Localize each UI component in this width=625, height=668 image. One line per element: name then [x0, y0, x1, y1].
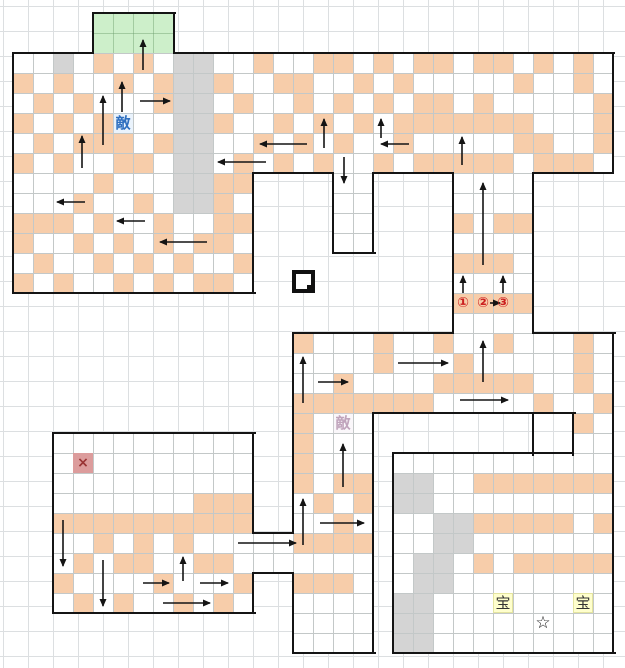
enemy-label-2: 敵 [333, 413, 353, 433]
treasure-label-1: 宝 [493, 593, 513, 613]
position-icon-dot [307, 285, 315, 293]
route-number-1: ① [453, 293, 473, 313]
cross-marker: × [73, 453, 93, 473]
route-number-3: ③ [493, 293, 513, 313]
route-arrows [0, 0, 625, 668]
enemy-label-1: 敵 [113, 113, 133, 133]
dungeon-map: 敵敵①②③×宝宝☆ [0, 0, 625, 668]
star-marker: ☆ [533, 613, 553, 633]
route-number-2: ② [473, 293, 493, 313]
treasure-label-2: 宝 [573, 593, 593, 613]
